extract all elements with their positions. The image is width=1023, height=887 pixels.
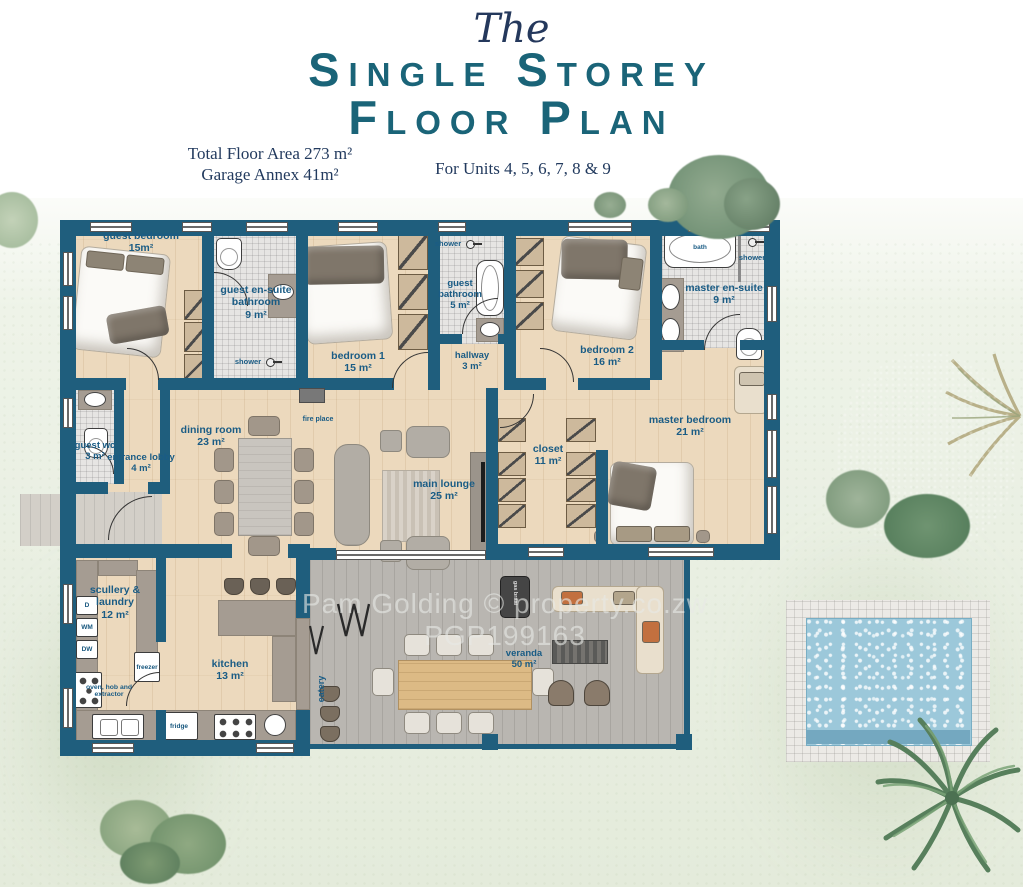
fireplace [299, 388, 325, 403]
shower-label: shower [432, 240, 464, 248]
window [767, 286, 777, 322]
room-area: 9 m² [218, 309, 294, 321]
room-label-entrance-lobby: entrance lobby 4 m² [102, 452, 180, 474]
washing-machine-label: WM [81, 624, 93, 631]
window [92, 743, 134, 753]
palm-tree [872, 712, 1023, 887]
toilet [216, 238, 242, 270]
window [63, 296, 73, 330]
wall [148, 482, 170, 494]
fridge-label: fridge [170, 723, 188, 730]
room-name: bedroom 2 [557, 344, 657, 356]
bed [71, 246, 171, 359]
window [246, 222, 288, 232]
veranda-chair [404, 712, 430, 734]
shower-icon [748, 238, 757, 247]
wall [296, 710, 310, 742]
bedroom-sofa [734, 366, 768, 414]
dishwasher: DW [76, 640, 98, 659]
room-name: master bedroom [640, 414, 740, 426]
room-name: scullery & laundry [74, 584, 156, 609]
wardrobe [514, 238, 544, 266]
basin [84, 392, 106, 407]
room-name: guest bedroom [80, 230, 202, 242]
window [256, 743, 294, 753]
wall [156, 556, 166, 642]
shower-icon [266, 358, 275, 367]
bed-blanket [561, 239, 628, 280]
sink-bowl [100, 719, 118, 736]
wall [428, 334, 462, 344]
window [63, 398, 73, 428]
wardrobe [514, 302, 544, 330]
room-area: 11 m² [508, 455, 588, 467]
wall [60, 482, 108, 494]
bed [610, 462, 694, 546]
room-name: main lounge [404, 478, 484, 490]
hob [214, 714, 256, 740]
room-name: guest bathroom [430, 278, 490, 300]
window [338, 222, 378, 232]
wardrobe [398, 314, 428, 350]
oven-label: oven, hob and extractor [80, 684, 138, 699]
room-area: 15 m² [308, 362, 408, 374]
bedside-table [696, 530, 710, 543]
window [63, 252, 73, 286]
veranda-pillar [482, 734, 498, 750]
veranda-pillar [676, 734, 692, 750]
room-label-master-ensuite: master en-suite 9 m² [684, 282, 764, 307]
page-title-line2: Floor Plan [0, 94, 1023, 141]
wardrobe [398, 274, 428, 310]
window [63, 584, 73, 624]
window [767, 486, 777, 534]
room-area: 25 m² [404, 490, 484, 502]
bed [301, 241, 394, 345]
dining-chair [248, 536, 280, 556]
total-area-text: Total Floor Area 273 m² [188, 144, 352, 163]
scullery-counter [98, 560, 138, 576]
room-label-kitchen: kitchen 13 m² [190, 658, 270, 683]
shrub [120, 842, 180, 884]
window [438, 222, 466, 232]
closet-shelf [498, 504, 526, 528]
pillow [616, 526, 652, 542]
shrub [826, 470, 890, 528]
fireplace-label: fire place [296, 416, 340, 424]
pillow [739, 372, 765, 386]
tree-canopy [648, 188, 688, 222]
room-area: 12 m² [74, 609, 156, 621]
shower-icon [466, 240, 475, 249]
dining-chair [248, 416, 280, 436]
room-label-closet: closet 11 m² [508, 443, 588, 468]
window [528, 547, 564, 557]
wall [650, 340, 704, 350]
room-area: 21 m² [640, 426, 740, 438]
window [767, 430, 777, 478]
wall [498, 334, 516, 344]
kitchen-sink [264, 714, 286, 736]
room-area: 16 m² [557, 356, 657, 368]
watermark-line1: Pam Golding © property.co.zw [225, 588, 785, 620]
room-name: hallway [432, 350, 512, 361]
room-name: master en-suite [684, 282, 764, 294]
room-label-scullery: scullery & laundry 12 m² [74, 584, 156, 621]
closet-shelf [566, 504, 596, 528]
eatery-label: eatery [317, 667, 327, 711]
veranda-chair [372, 668, 394, 696]
bed-throw [607, 461, 658, 512]
wall [596, 450, 608, 546]
dining-chair [294, 512, 314, 536]
dining-chair [214, 448, 234, 472]
wall [60, 544, 232, 558]
room-area: 9 m² [684, 294, 764, 306]
basin [661, 284, 680, 310]
ottoman [380, 430, 402, 452]
wall [310, 548, 336, 560]
dishwasher-label: DW [82, 646, 93, 653]
room-label-hallway: hallway 3 m² [432, 350, 512, 372]
pillow [618, 257, 644, 291]
room-area: 3 m² [432, 361, 512, 372]
bed-blanket [304, 245, 385, 284]
dining-table [238, 438, 292, 536]
freezer-label: freezer [136, 664, 157, 671]
wardrobe [398, 234, 428, 270]
wall [202, 236, 214, 380]
room-name: entrance lobby [102, 452, 180, 463]
veranda-edge [310, 744, 690, 749]
room-area: 13 m² [190, 670, 270, 682]
room-area: 4 m² [102, 463, 180, 474]
window [63, 688, 73, 728]
wardrobe [514, 270, 544, 298]
lounge-sofa [334, 444, 370, 546]
garage-annex-text: Garage Annex 41m² [201, 165, 338, 184]
room-label-bedroom2: bedroom 2 16 m² [557, 344, 657, 369]
shower-label: shower [736, 254, 768, 262]
room-label-dining-room: dining room 23 m² [171, 424, 251, 449]
closet-shelf [498, 478, 526, 502]
outdoor-chair [548, 680, 574, 706]
window [568, 222, 632, 232]
closet-shelf [566, 418, 596, 442]
wall [158, 378, 394, 390]
units-note: For Units 4, 5, 6, 7, 8 & 9 [398, 158, 648, 179]
dining-chair [214, 480, 234, 504]
veranda-chair [436, 712, 462, 734]
room-label-main-lounge: main lounge 25 m² [404, 478, 484, 503]
room-label-bedroom1: bedroom 1 15 m² [308, 350, 408, 375]
sliding-door [336, 550, 486, 560]
double-sink [92, 714, 144, 739]
bath-label: bath [686, 244, 714, 251]
page-title-line1: Single Storey [0, 46, 1023, 93]
window [648, 547, 714, 557]
dining-chair [294, 448, 314, 472]
wall [486, 388, 498, 546]
room-name: kitchen [190, 658, 270, 670]
outdoor-chair [584, 680, 610, 706]
room-label-guest-bathroom: guest bathroom 5 m² [430, 278, 490, 312]
room-area: 50 m² [484, 659, 564, 670]
dining-chair [214, 512, 234, 536]
shrub [594, 192, 626, 218]
pillow [654, 526, 690, 542]
floor-plan-poster: The Single Storey Floor Plan Total Floor… [0, 0, 1023, 887]
eatery-stool [320, 726, 340, 742]
total-floor-area: Total Floor Area 273 m² Garage Annex 41m… [150, 143, 390, 186]
dining-chair [294, 480, 314, 504]
shower-label: shower [232, 358, 264, 366]
tree-canopy [724, 178, 780, 230]
wall [156, 710, 166, 742]
room-label-guest-bedroom: guest bedroom 15m² [80, 230, 202, 255]
room-area: 5 m² [430, 300, 490, 311]
room-name: closet [508, 443, 588, 455]
room-area: 15m² [80, 242, 202, 254]
wall [740, 340, 780, 350]
room-area: 23 m² [171, 436, 251, 448]
veranda-chair [468, 712, 494, 734]
room-label-guest-ensuite: guest en-suite bathroom 9 m² [218, 284, 294, 321]
bed [550, 235, 647, 341]
closet-shelf [566, 478, 596, 502]
room-label-master-bedroom: master bedroom 21 m² [640, 414, 740, 439]
wall [578, 378, 650, 390]
sink-bowl [121, 719, 139, 736]
room-name: guest wc [64, 440, 126, 451]
shrub [884, 494, 970, 558]
room-name: bedroom 1 [308, 350, 408, 362]
room-name: dining room [171, 424, 251, 436]
wall [296, 236, 308, 380]
window [767, 394, 777, 420]
armchair [406, 426, 450, 458]
watermark-line2: PGP199163 [225, 620, 785, 652]
room-name: guest en-suite bathroom [218, 284, 294, 309]
